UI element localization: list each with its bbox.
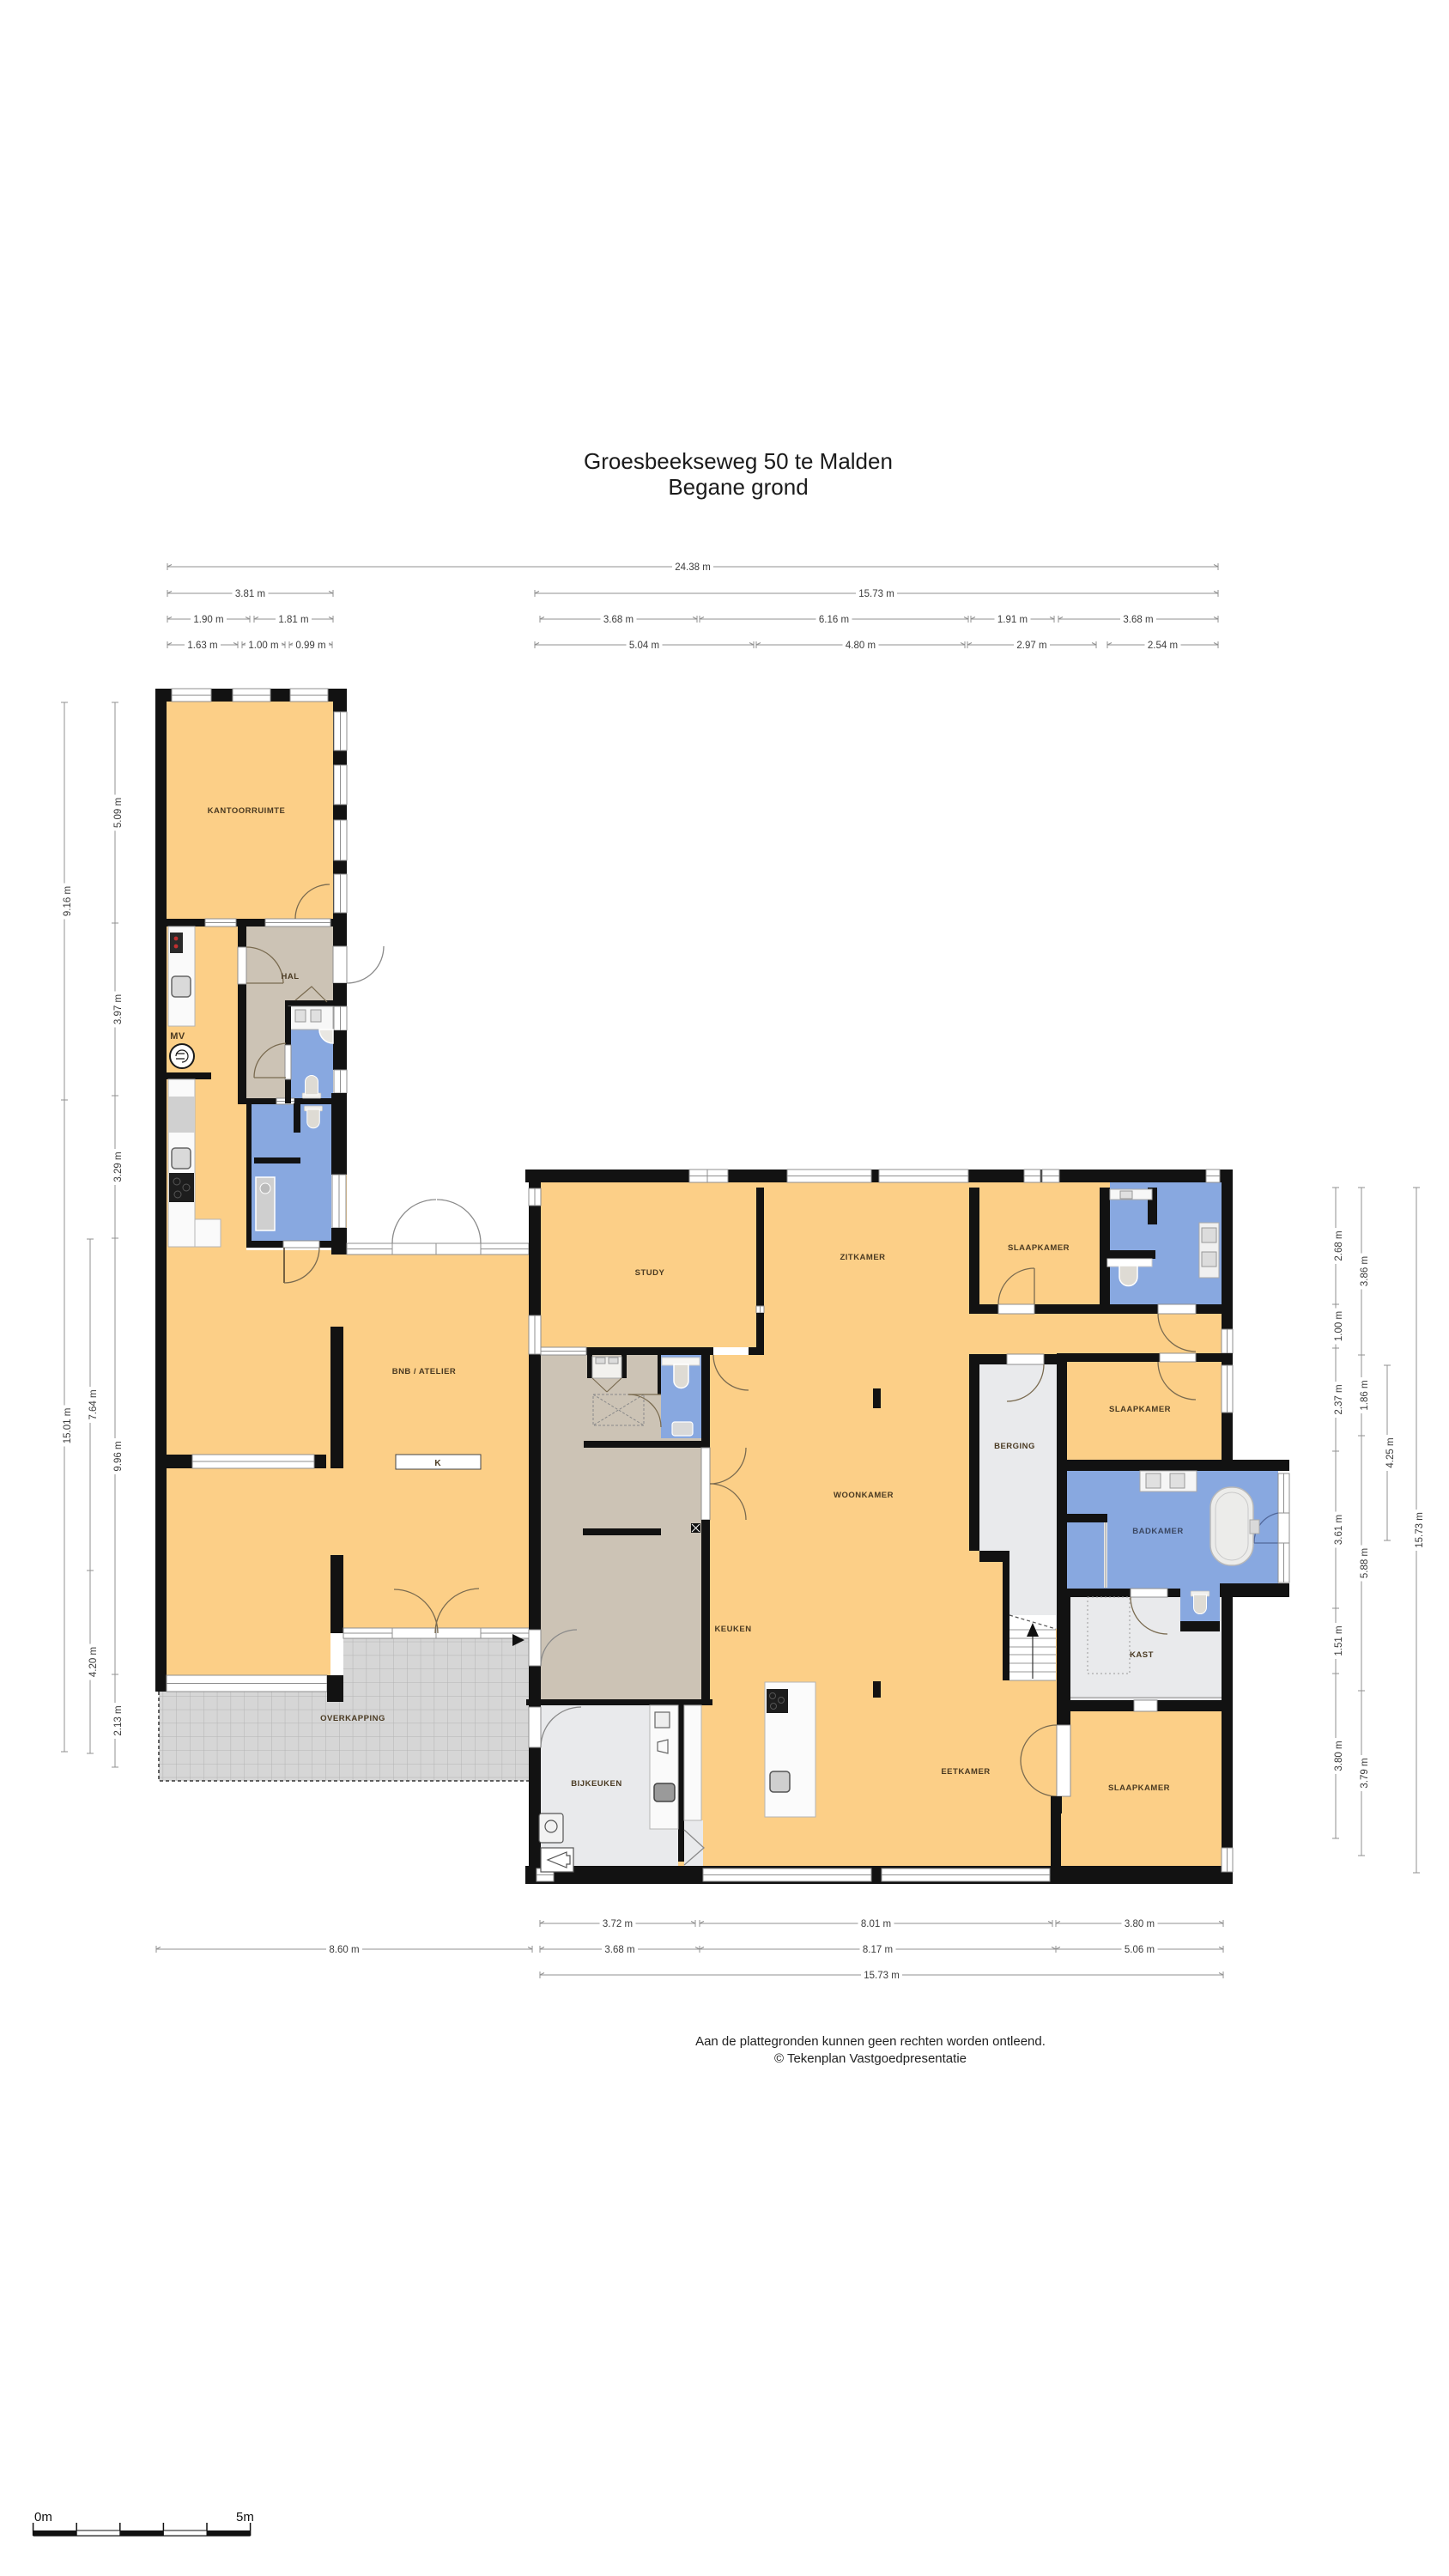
- svg-text:24.38 m: 24.38 m: [675, 562, 711, 573]
- svg-text:3.72 m: 3.72 m: [603, 1919, 633, 1929]
- svg-text:HAL: HAL: [281, 972, 299, 981]
- svg-text:8.01 m: 8.01 m: [861, 1919, 891, 1929]
- svg-text:2.68 m: 2.68 m: [1334, 1230, 1344, 1261]
- svg-text:SLAAPKAMER: SLAAPKAMER: [1008, 1243, 1070, 1253]
- svg-text:5.06 m: 5.06 m: [1125, 1945, 1155, 1955]
- svg-text:1.90 m: 1.90 m: [193, 615, 223, 625]
- svg-text:BNB / ATELIER: BNB / ATELIER: [392, 1367, 457, 1376]
- svg-text:3.68 m: 3.68 m: [1123, 615, 1153, 625]
- svg-text:7.64 m: 7.64 m: [88, 1389, 99, 1419]
- svg-text:3.97 m: 3.97 m: [113, 994, 124, 1024]
- svg-text:Aan de plattegronden kunnen ge: Aan de plattegronden kunnen geen rechten…: [695, 2034, 1046, 2049]
- svg-text:3.68 m: 3.68 m: [603, 615, 634, 625]
- svg-text:KAST: KAST: [1130, 1650, 1154, 1660]
- svg-text:3.29 m: 3.29 m: [113, 1151, 124, 1182]
- svg-text:5.04 m: 5.04 m: [629, 641, 659, 651]
- svg-text:KEUKEN: KEUKEN: [714, 1625, 751, 1634]
- svg-text:1.81 m: 1.81 m: [278, 615, 308, 625]
- svg-text:1.86 m: 1.86 m: [1360, 1380, 1370, 1410]
- svg-text:4.25 m: 4.25 m: [1385, 1437, 1396, 1467]
- svg-text:2.13 m: 2.13 m: [113, 1705, 124, 1735]
- svg-text:0m: 0m: [34, 2510, 52, 2524]
- svg-text:1.63 m: 1.63 m: [187, 641, 217, 651]
- svg-text:0.99 m: 0.99 m: [295, 641, 325, 651]
- svg-text:4.20 m: 4.20 m: [88, 1647, 99, 1677]
- svg-text:15.73 m: 15.73 m: [864, 1971, 900, 1981]
- svg-text:WOONKAMER: WOONKAMER: [834, 1491, 894, 1500]
- svg-text:3.80 m: 3.80 m: [1125, 1919, 1155, 1929]
- svg-text:BERGING: BERGING: [994, 1442, 1035, 1451]
- svg-text:2.54 m: 2.54 m: [1148, 641, 1178, 651]
- svg-text:15.01 m: 15.01 m: [63, 1408, 73, 1444]
- svg-text:9.96 m: 9.96 m: [113, 1441, 124, 1471]
- svg-text:5.09 m: 5.09 m: [113, 798, 124, 828]
- svg-text:STUDY: STUDY: [635, 1268, 665, 1278]
- svg-text:2.97 m: 2.97 m: [1016, 641, 1046, 651]
- svg-text:OVERKAPPING: OVERKAPPING: [320, 1714, 385, 1723]
- svg-text:15.73 m: 15.73 m: [1415, 1512, 1425, 1548]
- svg-text:3.81 m: 3.81 m: [235, 589, 265, 599]
- svg-text:Groesbeekseweg 50 te Malden: Groesbeekseweg 50 te Malden: [584, 448, 893, 474]
- svg-text:SLAAPKAMER: SLAAPKAMER: [1109, 1405, 1171, 1414]
- svg-text:8.17 m: 8.17 m: [863, 1945, 893, 1955]
- svg-text:1.00 m: 1.00 m: [248, 641, 278, 651]
- svg-text:BADKAMER: BADKAMER: [1132, 1527, 1183, 1536]
- svg-text:2.37 m: 2.37 m: [1334, 1384, 1344, 1414]
- svg-text:3.61 m: 3.61 m: [1334, 1515, 1344, 1545]
- svg-text:8.60 m: 8.60 m: [329, 1945, 359, 1955]
- svg-text:3.80 m: 3.80 m: [1334, 1741, 1344, 1771]
- svg-text:SLAAPKAMER: SLAAPKAMER: [1108, 1783, 1170, 1793]
- svg-text:5.88 m: 5.88 m: [1360, 1548, 1370, 1578]
- svg-text:9.16 m: 9.16 m: [63, 886, 73, 916]
- svg-text:KANTOORRUIMTE: KANTOORRUIMTE: [208, 806, 286, 816]
- svg-text:1.91 m: 1.91 m: [997, 615, 1028, 625]
- svg-text:15.73 m: 15.73 m: [858, 589, 894, 599]
- svg-text:ZITKAMER: ZITKAMER: [840, 1253, 885, 1262]
- svg-text:3.79 m: 3.79 m: [1360, 1758, 1370, 1788]
- svg-text:EETKAMER: EETKAMER: [941, 1767, 990, 1777]
- svg-text:3.68 m: 3.68 m: [604, 1945, 634, 1955]
- svg-text:5m: 5m: [236, 2510, 254, 2524]
- svg-text:MV: MV: [170, 1031, 185, 1042]
- svg-text:4.80 m: 4.80 m: [846, 641, 876, 651]
- svg-text:1.00 m: 1.00 m: [1334, 1311, 1344, 1341]
- svg-text:K: K: [434, 1459, 441, 1468]
- svg-text:BIJKEUKEN: BIJKEUKEN: [571, 1779, 621, 1789]
- svg-text:© Tekenplan Vastgoedpresentati: © Tekenplan Vastgoedpresentatie: [774, 2051, 967, 2066]
- svg-text:3.86 m: 3.86 m: [1360, 1256, 1370, 1286]
- svg-text:1.51 m: 1.51 m: [1334, 1625, 1344, 1656]
- svg-text:Begane grond: Begane grond: [668, 474, 808, 500]
- svg-text:6.16 m: 6.16 m: [819, 615, 849, 625]
